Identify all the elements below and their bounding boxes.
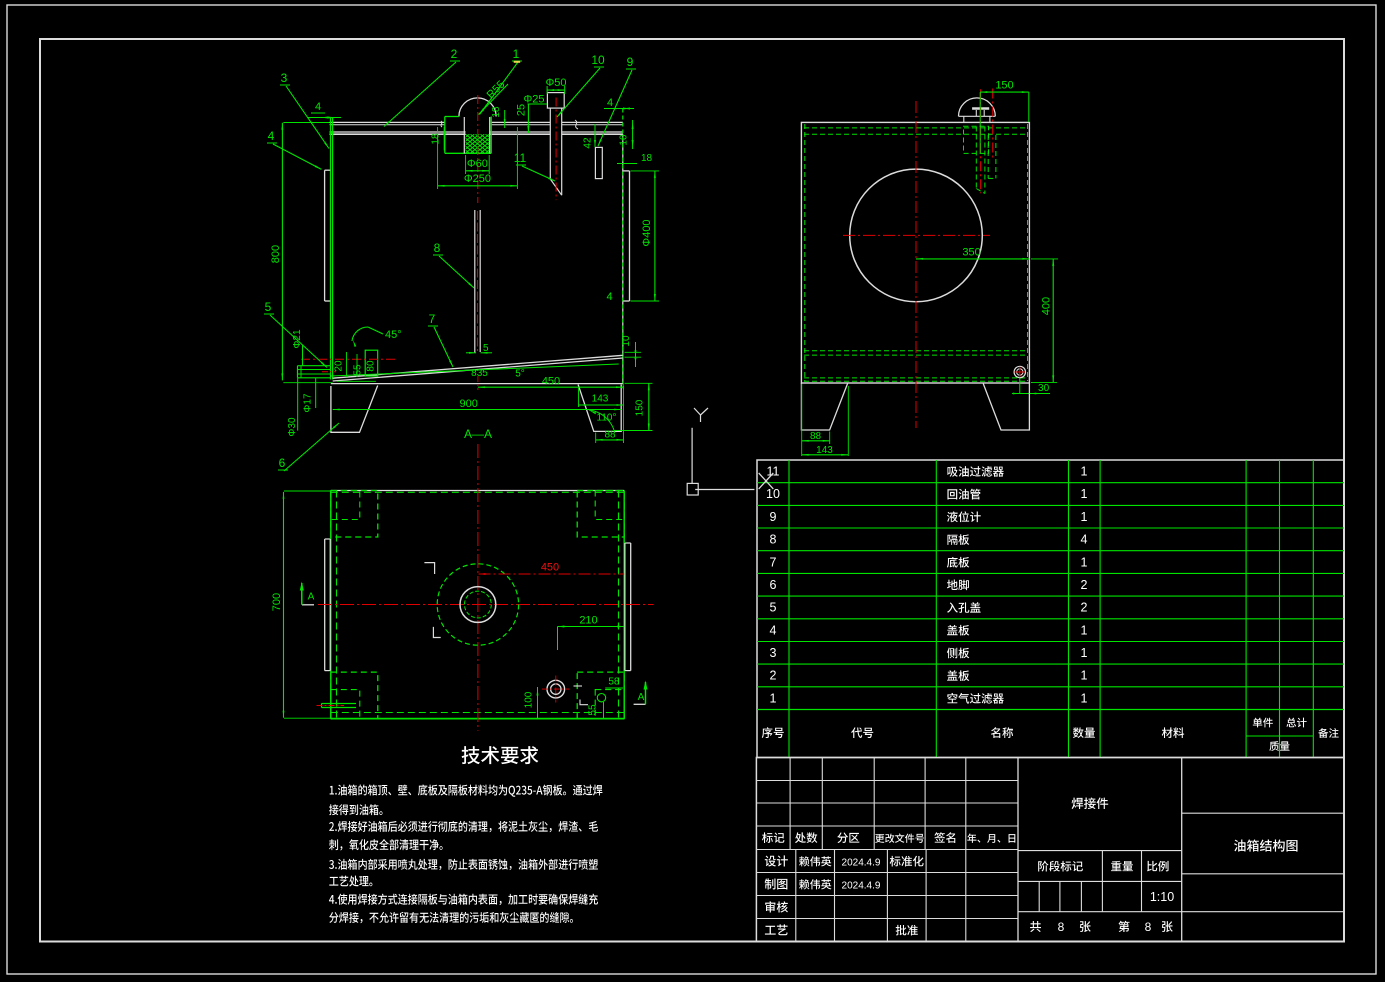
svg-text:2: 2 — [1081, 601, 1088, 615]
svg-text:10: 10 — [766, 487, 780, 501]
svg-text:20: 20 — [334, 360, 345, 372]
svg-text:1: 1 — [513, 47, 520, 61]
svg-text:7: 7 — [770, 555, 777, 569]
svg-text:A—A: A—A — [464, 427, 492, 441]
svg-text:Φ30: Φ30 — [287, 417, 298, 437]
svg-text:6: 6 — [770, 578, 777, 592]
svg-text:9: 9 — [627, 55, 634, 69]
svg-text:450: 450 — [542, 376, 560, 388]
svg-text:1: 1 — [1081, 646, 1088, 660]
svg-text:8: 8 — [770, 533, 777, 547]
svg-text:1: 1 — [770, 691, 777, 705]
svg-text:6: 6 — [279, 456, 286, 470]
svg-text:18: 18 — [431, 133, 442, 145]
svg-text:45°: 45° — [385, 329, 402, 341]
svg-text:7: 7 — [429, 312, 436, 326]
svg-text:8: 8 — [434, 241, 441, 255]
svg-text:80: 80 — [366, 360, 377, 372]
svg-text:Φ25: Φ25 — [523, 94, 544, 106]
svg-text:Φ17: Φ17 — [303, 393, 314, 413]
svg-text:55: 55 — [588, 704, 599, 716]
svg-text:1: 1 — [1081, 487, 1088, 501]
svg-text:800: 800 — [270, 245, 282, 263]
svg-text:10: 10 — [619, 134, 630, 146]
svg-text:11: 11 — [514, 151, 527, 165]
svg-text:4: 4 — [770, 623, 777, 637]
svg-text:4: 4 — [1081, 533, 1088, 547]
svg-text:18: 18 — [641, 153, 653, 164]
svg-text:143: 143 — [592, 394, 609, 405]
svg-text:3: 3 — [281, 71, 288, 85]
svg-text:5: 5 — [265, 300, 272, 314]
svg-text:210: 210 — [579, 615, 597, 627]
svg-text:8: 8 — [1145, 920, 1152, 934]
svg-text:1: 1 — [1081, 510, 1088, 524]
svg-text:18: 18 — [491, 106, 502, 118]
svg-text:2: 2 — [451, 47, 458, 61]
svg-text:700: 700 — [271, 593, 283, 611]
svg-text:Φ250: Φ250 — [464, 173, 491, 185]
svg-text:10: 10 — [621, 335, 632, 347]
svg-text:5: 5 — [770, 601, 777, 615]
svg-text:4: 4 — [606, 291, 612, 303]
svg-text:1: 1 — [1081, 691, 1088, 705]
svg-text:A: A — [638, 692, 645, 703]
svg-text:4: 4 — [268, 129, 275, 143]
svg-text:3: 3 — [770, 646, 777, 660]
svg-text:150: 150 — [635, 399, 646, 416]
svg-text:100: 100 — [524, 691, 535, 708]
svg-text:30: 30 — [1038, 383, 1050, 394]
svg-text:2024.4.9: 2024.4.9 — [842, 881, 881, 892]
svg-text:150: 150 — [995, 80, 1013, 92]
svg-text:4: 4 — [607, 97, 613, 109]
svg-text:4: 4 — [315, 101, 321, 113]
svg-text:1: 1 — [1081, 669, 1088, 683]
svg-text:835: 835 — [471, 368, 488, 379]
svg-text:2: 2 — [1081, 578, 1088, 592]
svg-text:2: 2 — [770, 669, 777, 683]
svg-text:11: 11 — [767, 465, 780, 479]
svg-text:143: 143 — [816, 445, 833, 456]
svg-text:450: 450 — [541, 562, 559, 574]
svg-text:88: 88 — [604, 430, 616, 441]
svg-text:42: 42 — [583, 137, 594, 149]
svg-text:2024.4.9: 2024.4.9 — [842, 858, 881, 869]
svg-text:Φ50: Φ50 — [545, 77, 566, 89]
svg-text:1: 1 — [1081, 465, 1088, 479]
svg-text:55: 55 — [353, 364, 364, 376]
svg-text:Φ60: Φ60 — [467, 158, 488, 170]
svg-text:400: 400 — [1041, 297, 1053, 315]
svg-text:88: 88 — [810, 431, 822, 442]
svg-text:10: 10 — [591, 53, 605, 67]
svg-text:A: A — [308, 592, 315, 603]
svg-text:8: 8 — [1058, 920, 1065, 934]
svg-text:25: 25 — [515, 104, 527, 116]
svg-text:1: 1 — [1081, 555, 1088, 569]
svg-text:9: 9 — [770, 510, 777, 524]
svg-text:350: 350 — [962, 247, 980, 259]
svg-text:58: 58 — [608, 677, 620, 688]
svg-text:Φ21: Φ21 — [292, 329, 303, 349]
svg-text:900: 900 — [460, 398, 478, 410]
svg-text:5°: 5° — [515, 369, 525, 380]
svg-text:1:10: 1:10 — [1150, 890, 1174, 904]
svg-text:Φ400: Φ400 — [641, 219, 653, 246]
svg-text:1: 1 — [1081, 623, 1088, 637]
